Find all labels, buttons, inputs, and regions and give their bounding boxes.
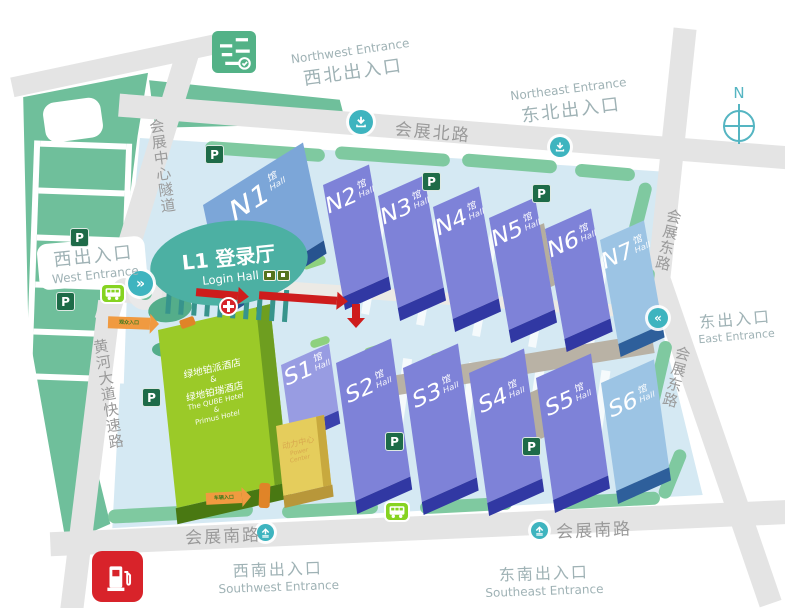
compass-north-label: N — [714, 84, 764, 102]
road-label-south: 会展南路 — [555, 514, 632, 542]
parking-icon: P — [385, 432, 404, 451]
hall-number: N2 — [324, 184, 358, 220]
hall-number: N7 — [600, 239, 634, 275]
entrance-northeast: Northeast Entrance 东北出入口 — [503, 74, 637, 130]
compass: N — [714, 84, 764, 146]
parking-lot-entry — [41, 96, 104, 144]
road-label-north: 会展北路 — [394, 115, 472, 147]
east-entrance-direction-icon: « — [648, 308, 668, 328]
hall-number: S6 — [608, 389, 639, 423]
chevrons-right: » — [136, 276, 145, 292]
entrance-northwest: Northwest Entrance 西北出入口 — [280, 34, 424, 93]
exhibition-center-map: N1 馆 Hall N2 馆 Hall N3 馆 Hall N4 馆 Hall … — [0, 0, 785, 608]
traffic-cone-icon — [259, 483, 271, 508]
amenity-badge-icon — [277, 270, 290, 281]
entrance-southwest: 西南出入口 Southwest Entrance — [217, 554, 338, 596]
first-aid-icon — [219, 297, 238, 316]
parking-icon: P — [422, 172, 441, 191]
hall-number: N5 — [490, 217, 524, 253]
gas-station-icon — [92, 551, 143, 602]
bus-station-icon — [102, 285, 124, 302]
parking-icon: P — [142, 388, 161, 407]
hotel-building: 绿地铂派酒店 & 绿地铂瑞酒店 The QUBE Hotel & Primus … — [158, 304, 289, 508]
bus-station-icon — [386, 503, 408, 520]
entrance-en: Southwest Entrance — [218, 578, 338, 596]
hall-number: S5 — [544, 387, 575, 421]
parking-icon: P — [56, 292, 75, 311]
parking-icon: P — [205, 145, 224, 164]
hall-number: S2 — [344, 374, 375, 408]
hall-number: N6 — [546, 228, 580, 264]
hall-number: N3 — [379, 195, 413, 231]
entrance-en: Southeast Entrance — [484, 582, 604, 600]
road-label-south: 会展南路 — [184, 520, 261, 548]
entrance-southeast: 东南出入口 Southeast Entrance — [483, 558, 604, 600]
hall-number: S3 — [411, 379, 442, 413]
parking-icon: P — [522, 437, 541, 456]
south-gate-arrow: 车辆入口 — [206, 491, 243, 505]
parking-icon: P — [532, 184, 551, 203]
metro-entrance-icon — [349, 110, 373, 134]
hall-number: S4 — [477, 384, 508, 418]
entrance-east: 东出入口 East Entrance — [687, 302, 785, 347]
route-arrow-down — [352, 304, 360, 318]
mini-map-icon — [212, 31, 256, 73]
hall-number: S1 — [283, 357, 314, 391]
amenity-badge-icon — [263, 270, 276, 281]
metro-entrance-icon — [531, 522, 548, 539]
power-center-building: 动力中心 Power Center — [276, 415, 331, 496]
hall-number: N4 — [434, 206, 468, 242]
south-gate-arrow-label: 车辆入口 — [214, 494, 234, 501]
west-gate-arrow: 观众入口 — [108, 316, 150, 329]
west-gate-arrow-label: 观众入口 — [119, 320, 139, 327]
chevrons-left: « — [654, 311, 662, 325]
metro-entrance-icon — [550, 137, 570, 157]
